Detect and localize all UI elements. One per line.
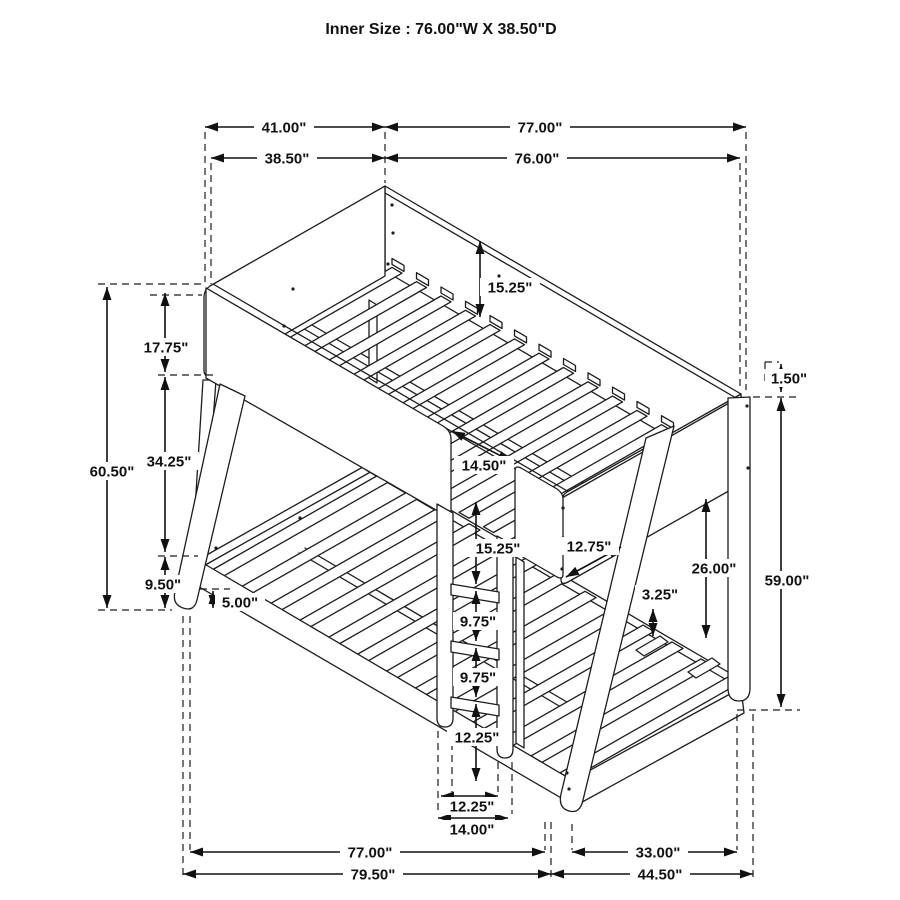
dim-label-bottom-inner-length: 77.00" — [348, 845, 393, 862]
dim-label-slat-clearance: 3.25" — [642, 587, 678, 604]
dim-label-footboard-height: 26.00" — [692, 561, 737, 578]
dim-label-left-total-height: 60.50" — [90, 464, 135, 481]
bunk-bed-dimension-diagram: 41.00"77.00"38.50"76.00"15.25"17.75"34.2… — [0, 0, 900, 900]
dim-label-left-upper-rail: 17.75" — [144, 340, 189, 357]
dim-label-bottom-outer-depth: 44.50" — [638, 867, 683, 884]
dim-label-right-total-height: 59.00" — [765, 573, 810, 590]
dim-label-ladder-step-b: 9.75" — [460, 670, 496, 687]
rear-right-leg — [728, 397, 750, 701]
dim-label-top-inner-depth: 38.50" — [265, 151, 310, 168]
dim-label-ladder-bottom-step: 12.25" — [455, 730, 500, 747]
bed-drawing — [174, 186, 750, 812]
ladder-left-post — [437, 504, 453, 727]
dim-label-ladder-step-a: 9.75" — [460, 614, 496, 631]
dim-label-ladder-opening: 14.50" — [462, 458, 507, 475]
diagram-title: Inner Size : 76.00"W X 38.50"D — [325, 21, 556, 38]
dim-label-bottom-outer-length: 79.50" — [351, 867, 396, 884]
dim-label-left-foot-clearance: 5.00" — [222, 595, 258, 612]
dim-label-rail-lip: 1.50" — [771, 371, 807, 388]
dim-label-guard-rail-length: 12.75" — [567, 539, 612, 556]
dim-label-left-lower-rail: 9.50" — [145, 577, 181, 594]
dim-label-headboard-rail-height: 15.25" — [488, 280, 533, 297]
ladder-right-post — [497, 536, 513, 758]
dim-label-left-mid-gap: 34.25" — [147, 454, 192, 471]
dim-label-top-overall-depth: 41.00" — [262, 120, 307, 137]
diagram-canvas: 41.00"77.00"38.50"76.00"15.25"17.75"34.2… — [0, 0, 900, 900]
dim-label-ladder-top-step: 15.25" — [476, 541, 521, 558]
dim-label-top-inner-length: 76.00" — [515, 151, 560, 168]
dim-label-bottom-foot-span: 33.00" — [636, 845, 681, 862]
dim-label-ladder-width-inner: 12.25" — [450, 799, 495, 816]
dim-label-top-overall-length: 77.00" — [518, 120, 563, 137]
dim-label-ladder-width-outer: 14.00" — [450, 822, 495, 839]
